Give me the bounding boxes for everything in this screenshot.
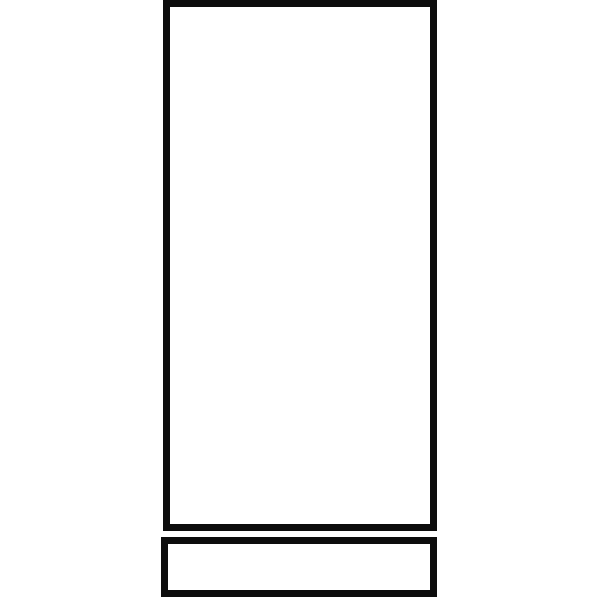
base-rectangle-outline [161,537,437,597]
tall-rectangle-outline [163,0,437,531]
drawing-canvas [0,0,600,600]
